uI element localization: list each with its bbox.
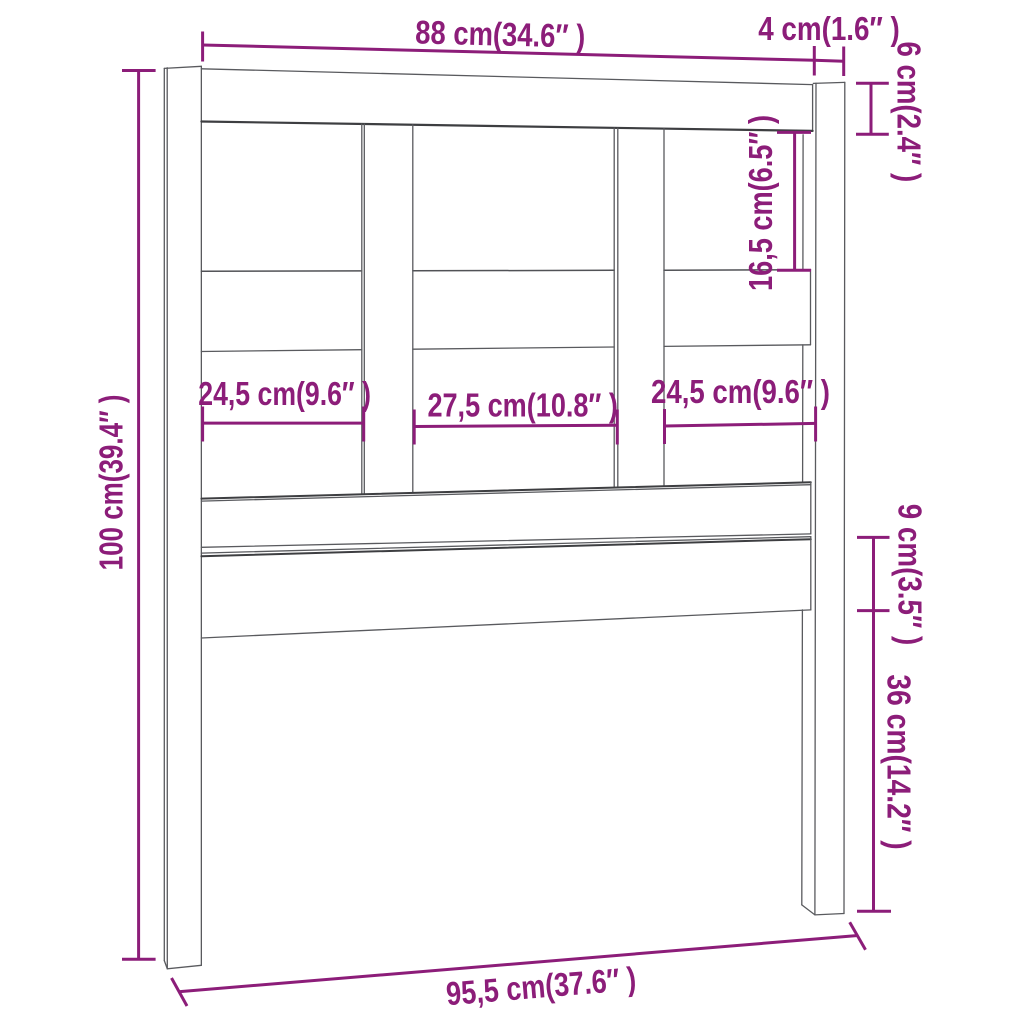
svg-text:24,5 cm(9.6″ ): 24,5 cm(9.6″ ) — [651, 373, 830, 410]
svg-text:27,5 cm(10.8″ ): 27,5 cm(10.8″ ) — [427, 387, 618, 424]
svg-text:100 cm(39.4″ ): 100 cm(39.4″ ) — [93, 395, 130, 571]
svg-text:36 cm(14.2″ ): 36 cm(14.2″ ) — [881, 674, 918, 849]
svg-text:4 cm(1.6″ ): 4 cm(1.6″ ) — [758, 10, 900, 47]
svg-text:9 cm(3.5″ ): 9 cm(3.5″ ) — [892, 504, 929, 646]
svg-text:88 cm(34.6″ ): 88 cm(34.6″ ) — [415, 13, 586, 54]
svg-text:16,5 cm(6.5″ ): 16,5 cm(6.5″ ) — [742, 115, 779, 291]
svg-text:6 cm(2.4″ ): 6 cm(2.4″ ) — [891, 41, 928, 182]
svg-text:24,5 cm(9.6″ ): 24,5 cm(9.6″ ) — [198, 375, 371, 412]
